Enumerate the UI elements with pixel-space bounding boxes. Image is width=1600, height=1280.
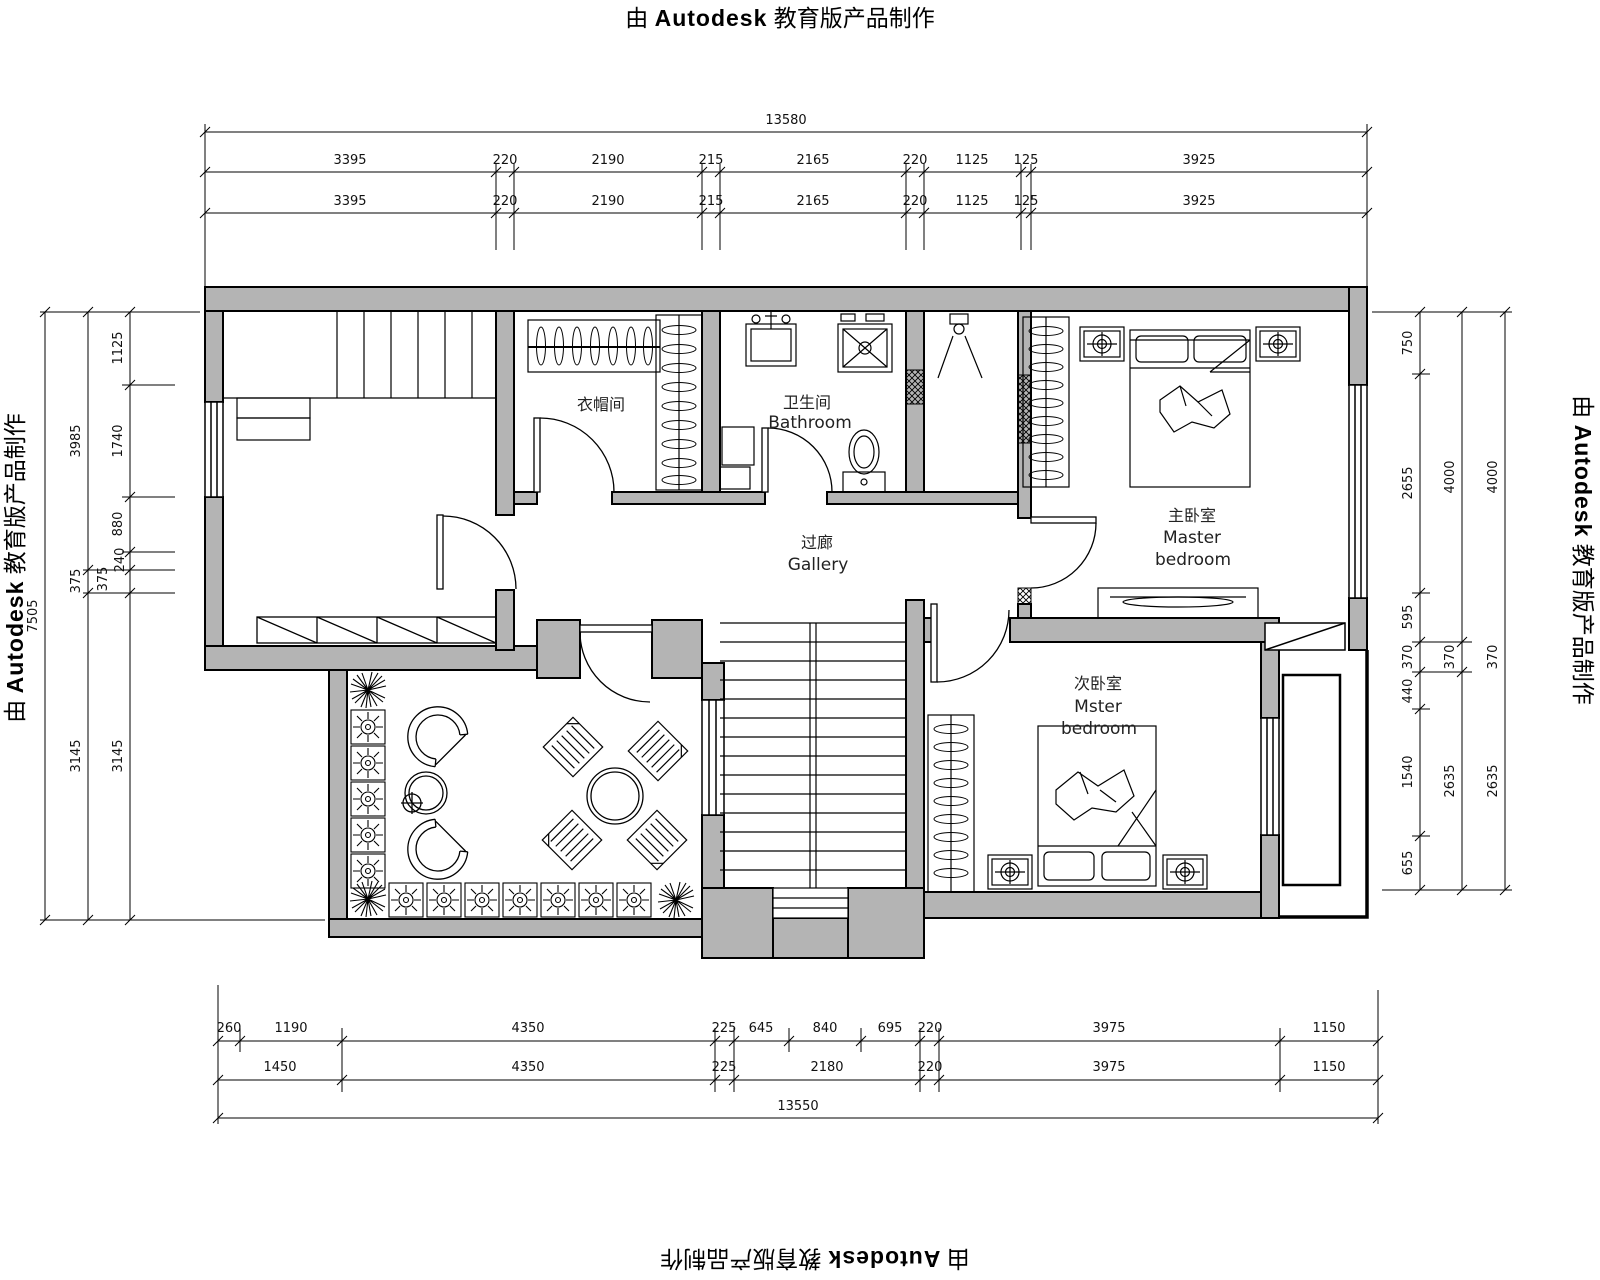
bed2-icon — [1038, 726, 1156, 886]
wall-left-upper — [205, 311, 223, 402]
bed2-label-en2: bedroom — [1061, 719, 1137, 739]
window-stairwell-icon — [702, 700, 724, 815]
balcony — [1265, 623, 1367, 917]
shower-head-icon — [938, 314, 982, 378]
dim-label: 2190 — [591, 153, 624, 168]
wall-bed2-top-b — [1010, 618, 1279, 642]
dim-label: 3145 — [69, 739, 84, 772]
nightstand-lamp-icon — [1080, 327, 1124, 361]
dim-label: 1190 — [274, 1021, 307, 1036]
wall-bed2-right-a — [1261, 642, 1279, 718]
dim-label: 225 — [712, 1060, 737, 1075]
dim-label: 13580 — [765, 113, 806, 128]
dim-label: 3145 — [111, 739, 126, 772]
dim-label: 2635 — [1443, 764, 1458, 797]
deck-chair-icon — [543, 717, 602, 776]
dim-label: 4000 — [1443, 460, 1458, 493]
plant-icon — [350, 881, 386, 917]
dim-label: 125 — [1014, 194, 1039, 209]
flower-pot-icon — [351, 710, 385, 744]
dim-label: 370 — [1443, 645, 1458, 670]
flower-pot-icon — [351, 818, 385, 852]
dim-label: 240 — [113, 548, 128, 573]
wall-cloak-bath — [702, 311, 720, 492]
dim-label: 440 — [1401, 679, 1416, 704]
hatch-icon — [906, 370, 924, 404]
wall-shower-master-b — [1018, 604, 1031, 618]
wall-stair-right — [906, 600, 924, 890]
flower-pot-icon — [579, 883, 613, 917]
wall-right-upper — [1349, 287, 1367, 385]
dim-label: 1150 — [1312, 1060, 1345, 1075]
wall-terrace-jamb-b — [652, 620, 702, 678]
master-bed-icon — [1130, 330, 1250, 487]
lounge-chair-icon — [395, 814, 472, 891]
dimension-labels: 13580 3395 220 2190 215 2165 220 1125 12… — [26, 113, 1501, 1114]
shower-tray-icon — [838, 314, 892, 372]
bed2-label-en1: Mster — [1074, 697, 1122, 717]
door-stairroom-icon — [437, 515, 516, 589]
wall-corridor-b — [612, 492, 765, 504]
dim-label: 220 — [918, 1021, 943, 1036]
window-master-right-icon — [1349, 385, 1367, 598]
flower-pot-icon — [541, 883, 575, 917]
dim-label: 220 — [493, 194, 518, 209]
hanger-rack-icon — [528, 320, 660, 372]
dim-label: 595 — [1401, 605, 1416, 630]
wall-terrace-bottom — [329, 919, 720, 937]
dim-label: 2190 — [591, 194, 624, 209]
door-bathroom-icon — [762, 428, 832, 492]
flower-pot-icon — [351, 782, 385, 816]
dim-label: 2165 — [796, 194, 829, 209]
dim-label: 215 — [699, 194, 724, 209]
dim-label: 1740 — [111, 424, 126, 457]
main-staircase — [720, 623, 906, 918]
flower-pot-icon — [351, 854, 385, 888]
wall-terrace-left — [329, 670, 347, 937]
gallery-label-zh: 过廊 — [801, 533, 833, 552]
wall-cloak-left-a — [496, 311, 514, 515]
wardrobe-bed2-icon — [928, 715, 974, 892]
watermark-bottom: 由 Autodesk 教育版产品制作 — [660, 1244, 970, 1278]
dim-label: 220 — [903, 153, 928, 168]
flower-pot-icon — [351, 746, 385, 780]
master-label-en1: Master — [1163, 528, 1221, 548]
side-table-icon — [401, 772, 447, 814]
dim-label: 3925 — [1182, 153, 1215, 168]
wall-top — [205, 287, 1367, 311]
toilet-icon — [843, 430, 885, 492]
door-bed2-icon — [931, 604, 1009, 682]
door-master-icon — [1031, 517, 1096, 588]
sink-icon — [746, 312, 796, 366]
bathroom-label-en: Bathroom — [768, 413, 852, 433]
door-cloakroom-icon — [534, 418, 614, 492]
tv-cabinet-icon — [1098, 588, 1258, 618]
watermark-right: 由 Autodesk 教育版产品制作 — [1568, 395, 1600, 705]
watermark-top: 由 Autodesk 教育版产品制作 — [625, 0, 935, 33]
flower-pot-icon — [465, 883, 499, 917]
wall-understairs-c — [773, 918, 848, 958]
balcony-outer-edge — [1279, 650, 1367, 917]
floorplan-page: 由 Autodesk 教育版产品制作 由 Autodesk 教育版产品制作 由 … — [0, 0, 1600, 1280]
dim-label: 2635 — [1486, 764, 1501, 797]
dim-label: 375 — [96, 567, 111, 592]
dim-label: 2180 — [810, 1060, 843, 1075]
dim-label: 375 — [69, 569, 84, 594]
dim-label: 4350 — [511, 1060, 544, 1075]
watermark-left: 由 Autodesk 教育版产品制作 — [0, 413, 30, 723]
bathroom-label-zh: 卫生间 — [783, 393, 831, 412]
stair-step — [237, 418, 310, 440]
door-terrace-icon — [580, 625, 652, 702]
dim-label: 13550 — [777, 1099, 818, 1114]
deck-chair-icon — [542, 810, 601, 869]
nightstand-lamp-icon — [1256, 327, 1300, 361]
landing-steps — [773, 888, 848, 918]
flower-pot-icon — [389, 883, 423, 917]
hatch-icon — [1018, 588, 1031, 604]
window-bed2-right-icon — [1261, 718, 1279, 835]
flower-pot-icon — [427, 883, 461, 917]
dim-label: 3395 — [333, 153, 366, 168]
dim-label: 2655 — [1401, 466, 1416, 499]
cloakroom-label: 衣帽间 — [577, 395, 625, 414]
wall-understairs-b — [848, 888, 924, 958]
dim-label: 2165 — [796, 153, 829, 168]
plant-icon — [350, 672, 386, 708]
dim-label: 645 — [749, 1021, 774, 1036]
plant-icon — [658, 882, 694, 918]
dim-label: 370 — [1486, 645, 1501, 670]
master-label-en2: bedroom — [1155, 550, 1231, 570]
gallery-label-en: Gallery — [788, 555, 849, 575]
dim-label: 220 — [918, 1060, 943, 1075]
wall-bed2-bottom — [924, 892, 1279, 918]
closet-stairroom — [257, 617, 496, 643]
bathroom-fixtures — [720, 312, 982, 492]
flower-pot-icon — [503, 883, 537, 917]
dim-label: 695 — [878, 1021, 903, 1036]
dim-label: 880 — [111, 512, 126, 537]
nightstand-lamp-icon — [1163, 855, 1207, 889]
dim-label: 3975 — [1092, 1060, 1125, 1075]
flower-pot-icon — [617, 883, 651, 917]
wall-stair-left-a — [702, 663, 724, 700]
dim-label: 1540 — [1401, 755, 1416, 788]
window-left-icon — [205, 402, 223, 497]
dim-label: 125 — [1014, 153, 1039, 168]
wall-cloak-left-b — [496, 590, 514, 650]
master-bedroom-furniture — [1023, 317, 1300, 618]
dim-label: 3975 — [1092, 1021, 1125, 1036]
dim-label: 260 — [217, 1021, 242, 1036]
room-labels: 衣帽间 卫生间 Bathroom 过廊 Gallery 主卧室 Master b… — [577, 393, 1231, 739]
dim-label: 1125 — [111, 331, 126, 364]
wardrobe-cloakroom-icon — [656, 315, 702, 490]
lounge-chair-icon — [395, 694, 472, 771]
wall-understairs-a — [702, 888, 773, 958]
stair-step — [237, 398, 310, 418]
wall-stairroom-bottom — [205, 646, 537, 670]
second-bedroom-furniture — [928, 715, 1207, 892]
wall-right-mid — [1349, 598, 1367, 650]
dim-label: 215 — [699, 153, 724, 168]
dim-label: 220 — [493, 153, 518, 168]
dim-label: 1125 — [955, 153, 988, 168]
dim-label: 4350 — [511, 1021, 544, 1036]
wall-corridor-a — [514, 492, 537, 504]
wall-terrace-jamb-a — [537, 620, 580, 678]
dim-label: 750 — [1401, 331, 1416, 356]
dim-label: 220 — [903, 194, 928, 209]
bed2-label-zh: 次卧室 — [1074, 674, 1122, 693]
dim-label: 4000 — [1486, 460, 1501, 493]
wall-bed2-right-b — [1261, 835, 1279, 918]
deck-chair-icon — [628, 721, 687, 780]
stairs-upper-room — [223, 311, 496, 440]
windows — [205, 385, 1367, 835]
master-label-zh: 主卧室 — [1168, 506, 1216, 525]
dim-label: 3925 — [1182, 194, 1215, 209]
balcony-inner-rect — [1283, 675, 1340, 885]
dim-label: 225 — [712, 1021, 737, 1036]
ac-cabinet-icon — [1265, 623, 1345, 650]
dim-label: 370 — [1401, 645, 1416, 670]
dim-label: 655 — [1401, 851, 1416, 876]
deck-chair-icon — [627, 810, 686, 869]
dining-table-icon — [587, 768, 643, 824]
wall-left-mid — [205, 497, 223, 646]
dim-label: 1150 — [1312, 1021, 1345, 1036]
wall-corridor-c — [827, 492, 1018, 504]
nightstand-lamp-icon — [988, 855, 1032, 889]
terrace-furniture — [350, 672, 694, 918]
dim-label: 1125 — [955, 194, 988, 209]
floorplan-drawing: 衣帽间 卫生间 Bathroom 过廊 Gallery 主卧室 Master b… — [0, 0, 1600, 1280]
dim-label: 3985 — [69, 424, 84, 457]
dim-label: 840 — [813, 1021, 838, 1036]
dim-label: 1450 — [263, 1060, 296, 1075]
bath-shaft-icon — [720, 427, 754, 489]
dim-label: 3395 — [333, 194, 366, 209]
